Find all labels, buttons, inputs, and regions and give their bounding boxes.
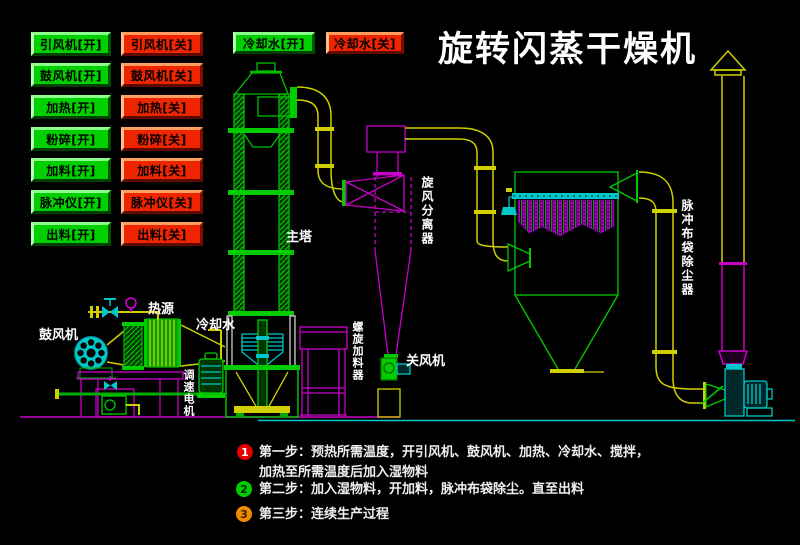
blower-on-button[interactable]: 鼓风机[开] bbox=[31, 63, 111, 87]
discharge-off-button[interactable]: 出料[关] bbox=[121, 222, 203, 246]
ground-line bbox=[20, 417, 795, 421]
pipe-tower-to-cyclone bbox=[297, 87, 344, 202]
speed-motor-drawing bbox=[197, 353, 225, 398]
step-3-text: 第三步：连续生产过程 bbox=[259, 503, 389, 522]
induced-fan-off-button[interactable]: 引风机[关] bbox=[121, 32, 203, 56]
bag-filter-drawing bbox=[501, 170, 637, 373]
feeding-on-button[interactable]: 加料[开] bbox=[31, 158, 111, 182]
screw-feeder-drawing bbox=[300, 327, 347, 417]
pulse-on-button[interactable]: 脉冲仪[开] bbox=[31, 190, 111, 214]
step-3-badge: 3 bbox=[236, 506, 252, 522]
blower-off-button[interactable]: 鼓风机[关] bbox=[121, 63, 203, 87]
cooling-water-label: 冷却水 bbox=[196, 314, 235, 333]
discharge-on-button[interactable]: 出料[开] bbox=[31, 222, 111, 246]
cooling-water-on-button[interactable]: 冷却水[开] bbox=[233, 32, 315, 54]
main-tower-label: 主塔 bbox=[286, 226, 312, 245]
page-title: 旋转闪蒸干燥机 bbox=[438, 21, 697, 72]
chimney-drawing bbox=[711, 51, 747, 369]
rotary-valve-label: 关风机 bbox=[406, 350, 445, 369]
step-1-text-line1: 第一步：预热所需温度，开引风机、鼓风机、加热、冷却水、搅拌， bbox=[259, 441, 649, 460]
exhaust-fan-drawing bbox=[701, 369, 772, 416]
crushing-on-button[interactable]: 粉碎[开] bbox=[31, 127, 111, 151]
pulse-off-button[interactable]: 脉冲仪[关] bbox=[121, 190, 203, 214]
speed-motor-label: 调速电机 bbox=[180, 369, 196, 417]
blower-drawing bbox=[75, 331, 125, 378]
hmi-screen: 引风机[开] 引风机[关] 鼓风机[开] 鼓风机[关] 加热[开] 加热[关] … bbox=[0, 0, 800, 545]
bag-filter-label: 脉冲布袋除尘器 bbox=[679, 199, 696, 297]
induced-fan-on-button[interactable]: 引风机[开] bbox=[31, 32, 111, 56]
step-2-text: 第二步：加入湿物料，开加料，脉冲布袋除尘。直至出料 bbox=[259, 478, 584, 497]
feeding-off-button[interactable]: 加料[关] bbox=[121, 158, 203, 182]
cooling-water-off-button[interactable]: 冷却水[关] bbox=[326, 32, 404, 54]
step-2-badge: 2 bbox=[236, 481, 252, 497]
heating-on-button[interactable]: 加热[开] bbox=[31, 95, 111, 119]
cyclone-label: 旋风分离器 bbox=[419, 176, 436, 246]
step-1-badge: 1 bbox=[237, 444, 253, 460]
blower-label: 鼓风机 bbox=[39, 324, 78, 343]
screw-feeder-label: 螺旋加料器 bbox=[349, 321, 365, 381]
crushing-off-button[interactable]: 粉碎[关] bbox=[121, 127, 203, 151]
heating-off-button[interactable]: 加热[关] bbox=[121, 95, 203, 119]
heat-source-label: 热源 bbox=[148, 298, 174, 317]
